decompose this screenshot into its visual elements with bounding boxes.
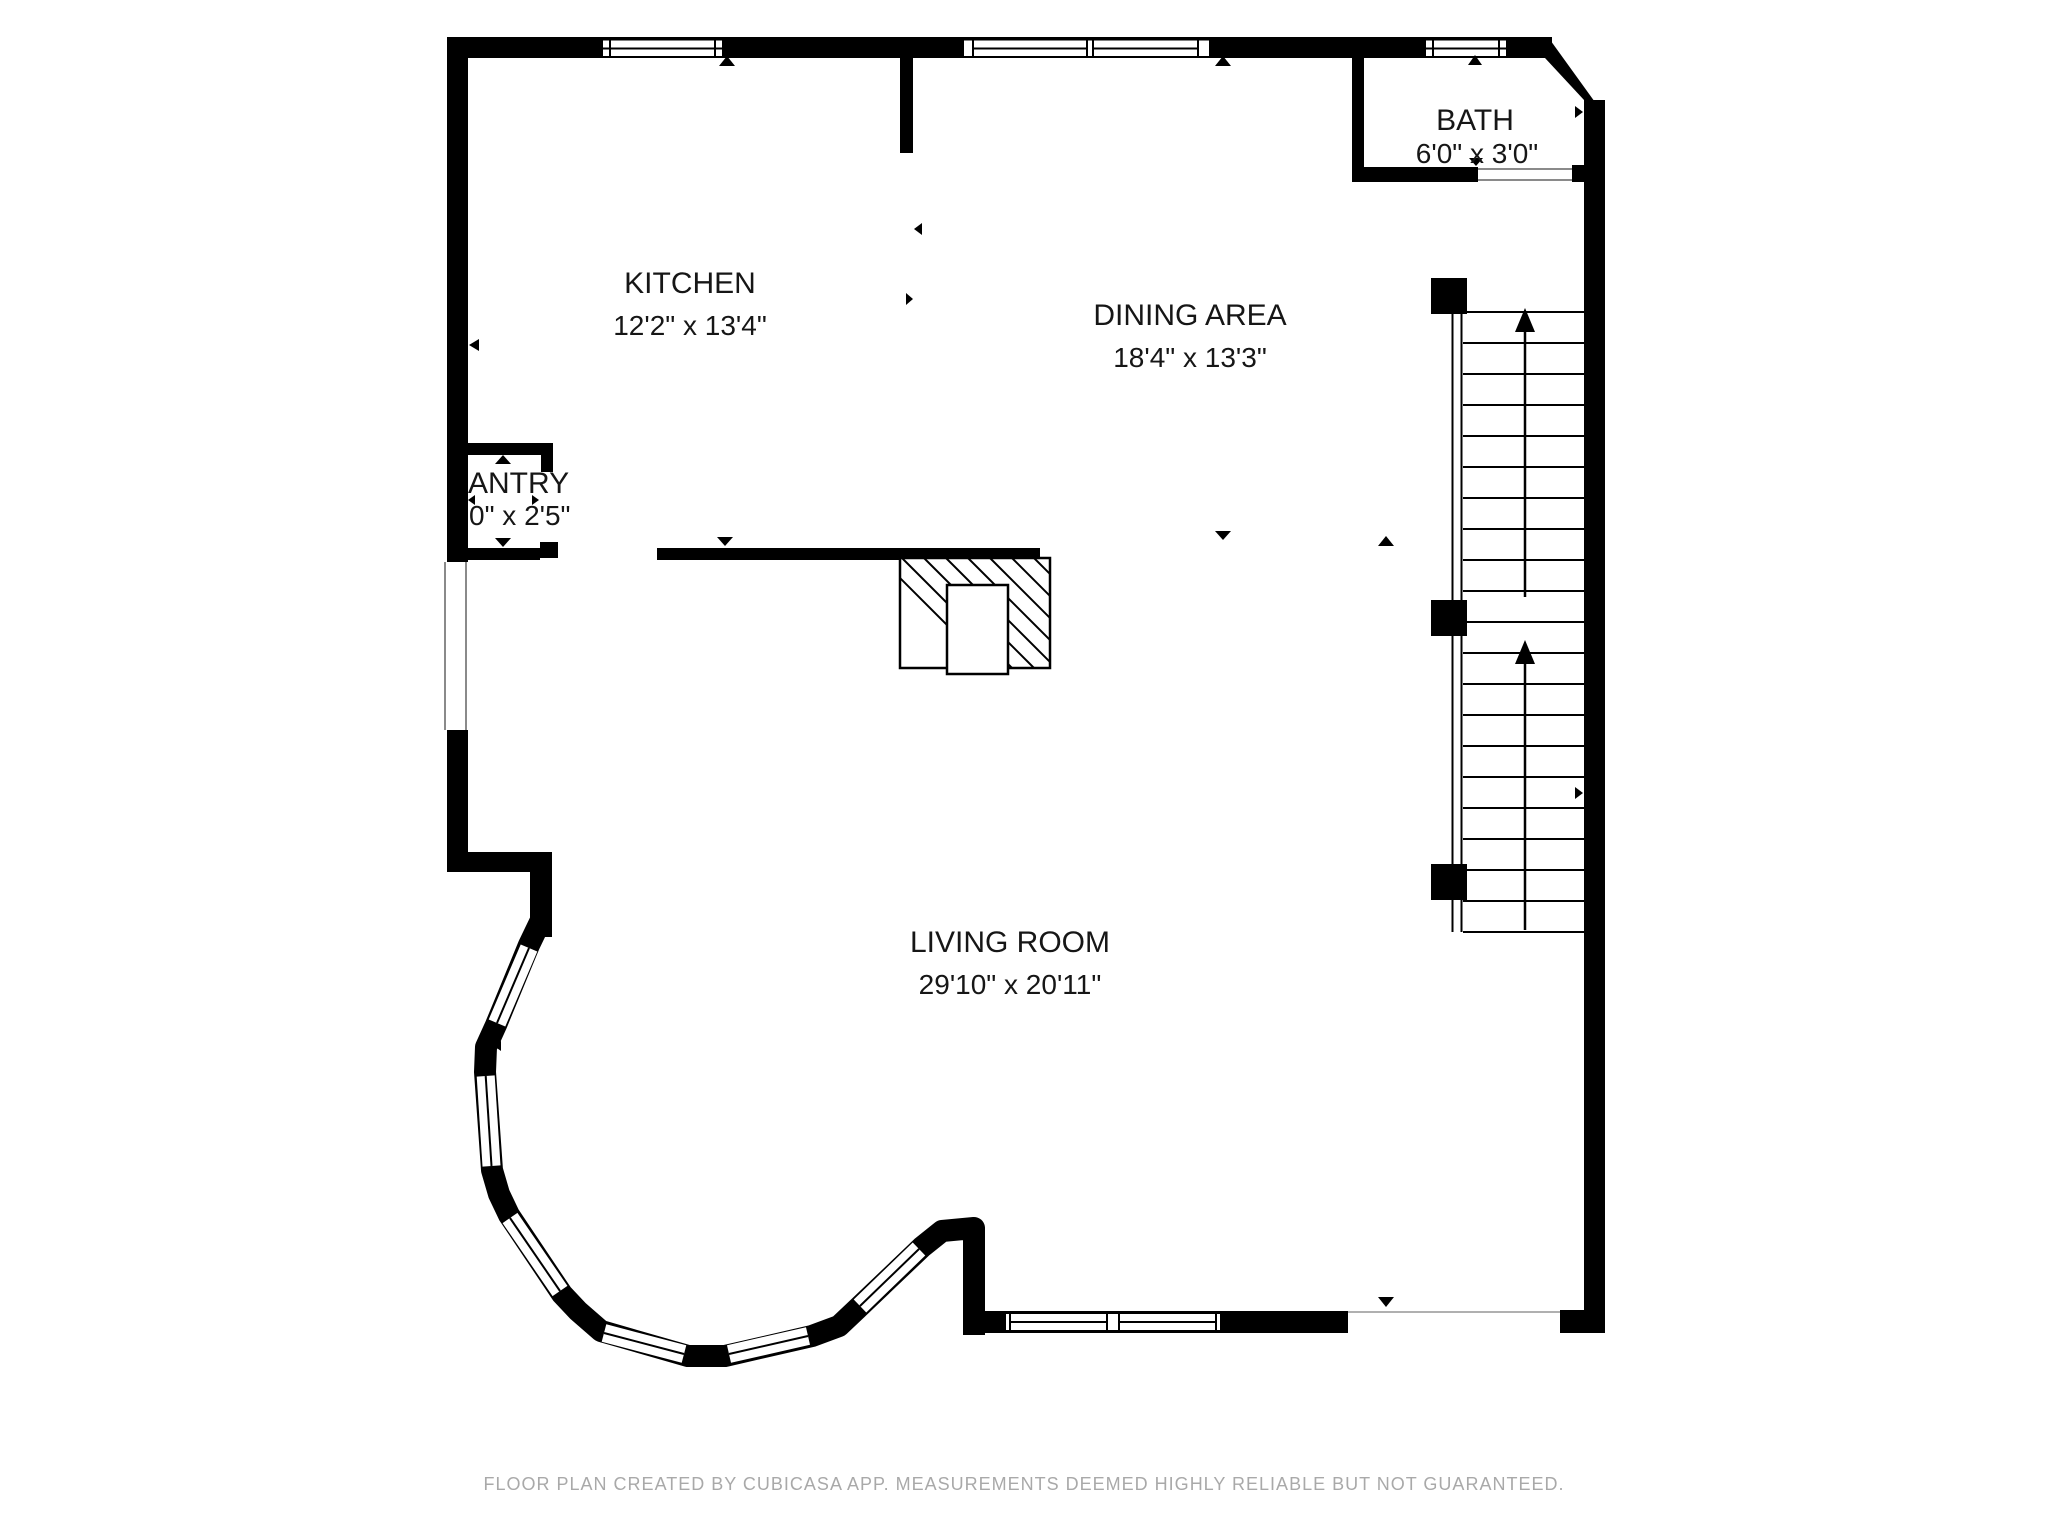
- arrow-down-icon: [1215, 531, 1231, 540]
- arrow-down-icon: [1378, 1297, 1394, 1307]
- pantry-top-wall: [447, 443, 553, 455]
- bay-window-wall: [485, 855, 974, 1356]
- arrow-right-icon: [906, 293, 913, 305]
- interior-walls: [447, 58, 1584, 560]
- direction-markers: [468, 55, 1583, 1307]
- floor-plan-drawing: KITCHEN 12'2" x 13'4" DINING AREA 18'4" …: [0, 0, 2048, 1536]
- fireplace: [880, 558, 1144, 674]
- bath-dimensions: 6'0" x 3'0": [1416, 138, 1538, 169]
- arrow-up-icon: [1378, 536, 1394, 546]
- arrow-right-icon: [1575, 787, 1583, 799]
- dining-label: DINING AREA: [1093, 299, 1286, 332]
- stair-up-arrow-icon: [1515, 308, 1535, 597]
- bath-label: BATH: [1436, 104, 1514, 137]
- bath-left-wall: [1352, 58, 1364, 182]
- living-bottom-window: [1005, 1313, 1221, 1331]
- bath-door-jamb: [1572, 165, 1584, 182]
- outer-walls: [447, 37, 1605, 1335]
- living-label: LIVING ROOM: [910, 926, 1110, 959]
- kitchen-label: KITCHEN: [624, 267, 756, 300]
- pantry-label: ANTRY: [468, 467, 569, 500]
- stair-post: [1431, 278, 1467, 314]
- kitchen-window: [602, 40, 723, 58]
- dining-double-window: [963, 40, 1210, 58]
- stair-post: [1431, 864, 1467, 900]
- staircase: [1431, 278, 1584, 932]
- pantry-dimensions: 0" x 2'5": [469, 500, 571, 531]
- fireplace-firebox: [947, 585, 1008, 674]
- arrow-left-icon: [914, 223, 922, 235]
- bay-window-glazing: [486, 948, 919, 1354]
- cubicasa-footer-note: FLOOR PLAN CREATED BY CUBICASA APP. MEAS…: [484, 1474, 1565, 1494]
- arrow-up-icon: [495, 455, 511, 464]
- kitchen-bottom-wall-left: [447, 548, 540, 560]
- kitchen-dimensions: 12'2" x 13'4": [613, 310, 767, 341]
- living-dimensions: 29'10" x 20'11": [919, 969, 1102, 1000]
- kitchen-dining-divider: [900, 58, 913, 153]
- arrow-down-icon: [495, 538, 511, 547]
- arrow-down-icon: [717, 537, 733, 546]
- stair-treads: [1463, 312, 1584, 932]
- dining-dimensions: 18'4" x 13'3": [1113, 342, 1267, 373]
- stair-post: [1431, 600, 1467, 636]
- bath-bottom-wall: [1352, 167, 1478, 182]
- arrow-left-icon: [469, 339, 479, 351]
- floor-plan-page: KITCHEN 12'2" x 13'4" DINING AREA 18'4" …: [0, 0, 2048, 1536]
- arrow-right-icon: [1575, 106, 1583, 118]
- bath-window: [1425, 40, 1507, 58]
- kitchen-door-jamb: [540, 542, 558, 558]
